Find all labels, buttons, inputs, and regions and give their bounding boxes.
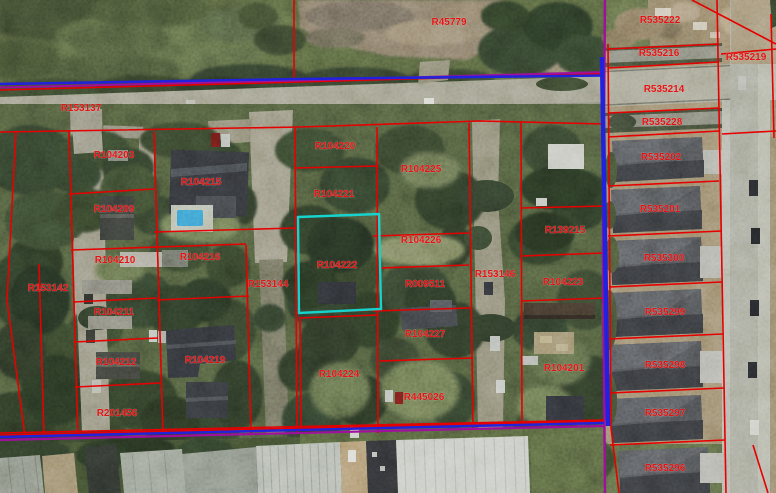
- svg-text:R104215: R104215: [181, 177, 222, 188]
- svg-text:R104220: R104220: [315, 141, 356, 152]
- svg-text:R139215: R139215: [545, 225, 586, 236]
- svg-text:R104211: R104211: [94, 307, 134, 318]
- svg-text:R104224: R104224: [319, 369, 360, 380]
- svg-text:R104226: R104226: [401, 235, 442, 246]
- svg-text:R104225: R104225: [401, 164, 442, 175]
- svg-text:R445026: R445026: [404, 392, 445, 403]
- svg-text:R153144: R153144: [248, 279, 289, 290]
- svg-text:R009511: R009511: [405, 279, 445, 290]
- svg-text:R45779: R45779: [431, 17, 466, 28]
- svg-text:R535214: R535214: [644, 84, 685, 95]
- svg-text:R104219: R104219: [185, 355, 226, 366]
- svg-text:R535222: R535222: [640, 15, 681, 26]
- svg-text:R535299: R535299: [645, 307, 686, 318]
- svg-text:R104221: R104221: [314, 189, 355, 200]
- svg-text:R535297: R535297: [645, 408, 686, 419]
- svg-text:R153137: R153137: [61, 103, 102, 114]
- svg-text:R104209: R104209: [94, 204, 135, 215]
- svg-text:R535216: R535216: [639, 48, 680, 59]
- svg-text:R104212: R104212: [96, 357, 137, 368]
- svg-text:R104216: R104216: [180, 252, 221, 263]
- svg-text:R535296: R535296: [645, 463, 686, 474]
- svg-text:R104210: R104210: [95, 255, 136, 266]
- svg-text:R153142: R153142: [28, 283, 69, 294]
- svg-text:R104203: R104203: [94, 150, 135, 161]
- svg-text:R104227: R104227: [405, 329, 446, 340]
- svg-text:R104222: R104222: [317, 260, 358, 271]
- svg-text:R535228: R535228: [642, 117, 683, 128]
- svg-text:R535219: R535219: [726, 52, 767, 63]
- svg-text:R201456: R201456: [97, 408, 138, 419]
- svg-text:R153146: R153146: [475, 269, 516, 280]
- svg-text:R104223: R104223: [543, 277, 584, 288]
- svg-text:R535201: R535201: [640, 204, 681, 215]
- svg-text:R535202: R535202: [641, 152, 682, 163]
- svg-text:R535300: R535300: [644, 253, 685, 264]
- svg-text:R104201: R104201: [544, 363, 585, 374]
- svg-text:R535298: R535298: [645, 360, 686, 371]
